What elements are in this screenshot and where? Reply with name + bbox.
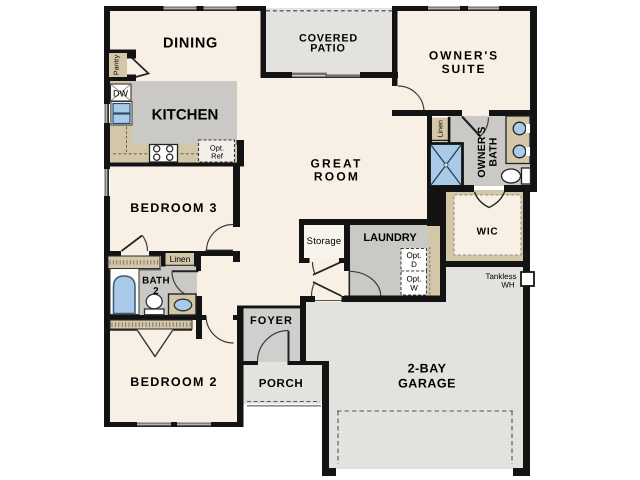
svg-text:WH: WH <box>501 281 515 290</box>
svg-text:Opt.: Opt. <box>406 275 421 284</box>
svg-text:D: D <box>411 260 417 269</box>
svg-text:LAUNDRY: LAUNDRY <box>363 232 417 244</box>
svg-text:W: W <box>410 284 418 293</box>
svg-text:Storage: Storage <box>307 236 342 247</box>
svg-text:ROOM: ROOM <box>314 170 360 184</box>
svg-text:BEDROOM 2: BEDROOM 2 <box>130 375 217 389</box>
svg-text:FOYER: FOYER <box>250 315 293 327</box>
svg-text:GARAGE: GARAGE <box>398 377 456 391</box>
svg-text:Ref: Ref <box>211 152 224 161</box>
svg-text:SUITE: SUITE <box>442 62 487 76</box>
svg-text:PORCH: PORCH <box>259 378 304 390</box>
svg-text:OWNER'S: OWNER'S <box>476 126 488 177</box>
svg-text:2-BAY: 2-BAY <box>408 362 447 376</box>
svg-text:OWNER'S: OWNER'S <box>429 49 499 63</box>
svg-text:Pantry: Pantry <box>114 54 121 75</box>
svg-text:KITCHEN: KITCHEN <box>152 106 219 123</box>
svg-text:DW: DW <box>113 89 128 99</box>
svg-text:2: 2 <box>153 286 159 297</box>
svg-text:BEDROOM 3: BEDROOM 3 <box>130 201 217 215</box>
svg-text:GREAT: GREAT <box>310 157 362 171</box>
svg-text:WIC: WIC <box>477 226 499 237</box>
svg-text:Linen: Linen <box>437 120 445 137</box>
svg-text:DINING: DINING <box>163 36 218 52</box>
svg-text:PATIO: PATIO <box>310 43 345 55</box>
svg-text:Linen: Linen <box>170 254 191 264</box>
svg-text:BATH: BATH <box>488 137 500 166</box>
svg-text:Opt.: Opt. <box>406 251 421 260</box>
